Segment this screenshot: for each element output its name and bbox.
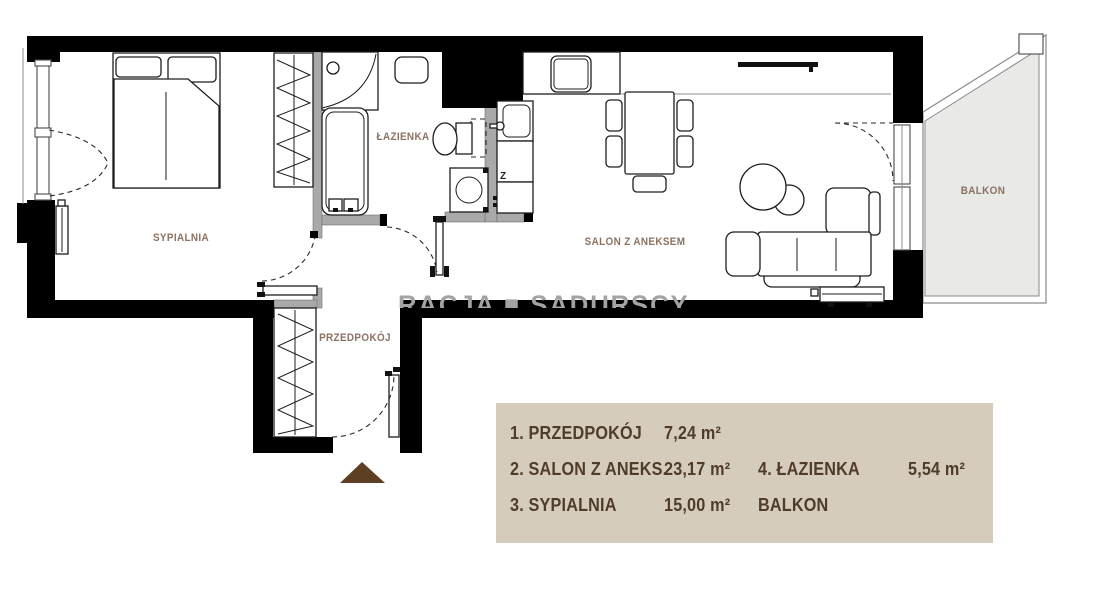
bathroom-door: [387, 216, 449, 277]
hob: [551, 56, 591, 92]
wall-left-pilaster: [17, 203, 29, 243]
sofa-back-cushion: [869, 192, 880, 235]
legend-room-name: BALKON: [758, 495, 828, 516]
wall-right-lower: [893, 250, 923, 318]
sofa-armrest: [726, 232, 760, 276]
wall-bedroom-bathroom: [313, 52, 322, 238]
legend-room-area: 23,17 m²: [664, 459, 730, 480]
legend-room-area: 5,54 m²: [908, 459, 965, 480]
bathroom-vanity: [322, 52, 378, 110]
wall-bathroom-bottom-left: [322, 215, 380, 225]
entry-door-hinge-a: [385, 371, 392, 376]
wall-wardrobe-cap: [274, 300, 317, 308]
room-label-bedroom: SYPIALNIA: [141, 232, 222, 244]
toilet-cistern: [471, 119, 486, 157]
dishwasher-marker: Z: [500, 171, 506, 182]
entry-door-leaf: [389, 375, 399, 437]
chair: [606, 100, 622, 131]
wall-hall-right: [400, 318, 422, 453]
legend-row: 1. PRZEDPOKÓJ 7,24 m²: [496, 416, 993, 452]
chair: [606, 136, 622, 167]
bathroom-door-end-a: [430, 266, 435, 277]
bathroom-door-hinge: [433, 216, 446, 222]
wall-cap-bathroom: [380, 214, 387, 226]
radiator-foot-a: [828, 302, 834, 307]
chair: [633, 176, 666, 192]
kitchen-counter-top: [523, 52, 620, 94]
window-joint-bottom: [35, 194, 51, 200]
area-legend: 1. PRZEDPOKÓJ 7,24 m² 2. SALON Z ANEKS. …: [496, 403, 993, 543]
window-joint-top: [35, 60, 51, 66]
room-label-living: SALON Z ANEKSEM: [572, 236, 698, 248]
balcony-corner-post: [1019, 34, 1043, 54]
vanity-drain: [327, 62, 339, 74]
legend-room-area: 15,00 m²: [664, 495, 730, 516]
sofa-seat: [758, 232, 871, 276]
wall-right-upper: [893, 36, 923, 123]
washing-machine: [450, 168, 488, 212]
washing-machine-mark-a: [483, 168, 488, 173]
kitchen-tall-units: Z: [490, 101, 533, 213]
wall-foot-bedroom: [310, 231, 318, 238]
wall-bottom-bedroom: [27, 300, 274, 318]
watermark: RACJA ■ SADURSCY: [398, 292, 738, 308]
bedroom-door-leaf: [263, 286, 317, 295]
radiator-valve: [811, 289, 818, 296]
tv-bar: [738, 62, 818, 67]
wall-hall-left: [253, 318, 273, 453]
entry-door-arc: [332, 375, 394, 437]
window-joint-mid: [35, 128, 51, 137]
coffee-tables: [740, 164, 804, 215]
washing-machine-mark-b: [483, 207, 488, 212]
legend-room-name: 1. PRZEDPOKÓJ: [510, 423, 642, 444]
hall-wardrobe: [274, 308, 316, 437]
bedroom-window: [23, 48, 108, 204]
radiator-foot-b: [866, 302, 872, 307]
bathroom-door-end-b: [444, 266, 449, 277]
window-swing-arc: [49, 130, 108, 196]
bathtub: [322, 108, 368, 215]
fridge: [497, 182, 533, 213]
bed: [113, 53, 220, 188]
coffee-table: [740, 164, 786, 210]
radiator-valve: [58, 200, 65, 206]
chair: [677, 136, 693, 167]
room-label-balcony: BALKON: [947, 185, 1019, 197]
bedroom-radiator: [56, 200, 68, 254]
bathtub-tap-mark-a: [333, 208, 338, 212]
room-label-hall: PRZEDPOKÓJ: [315, 332, 396, 344]
bedroom-wardrobe: [274, 53, 313, 187]
legend-room-name: 3. SYPIALNIA: [510, 495, 617, 516]
sofa-chaise: [826, 188, 871, 235]
room-label-bathroom: ŁAZIENKA: [367, 131, 439, 143]
toilet: [433, 119, 486, 157]
bedroom-door-arc: [262, 237, 315, 281]
bedroom-door-hinge-a: [257, 282, 265, 287]
balcony-floor: [925, 49, 1039, 296]
dining-set: [606, 92, 693, 192]
washbasin: [395, 57, 428, 83]
chair: [677, 100, 693, 131]
wall-hall-bottom: [253, 437, 333, 453]
tv-shelf: [738, 62, 818, 72]
legend-room-name: 4. ŁAZIENKA: [758, 459, 860, 480]
pillow-left: [116, 57, 161, 77]
fridge-hinge-b: [493, 203, 497, 207]
bedroom-door-hinge-b: [257, 292, 265, 297]
watermark-text: RACJA ■ SADURSCY: [398, 292, 721, 308]
vanity-counter: [322, 52, 378, 110]
wall-shaft: [442, 36, 523, 108]
legend-room-area: 7,24 m²: [664, 423, 721, 444]
bathroom-door-arc: [387, 227, 437, 272]
bathtub-tap-mark-b: [348, 208, 353, 212]
entry-door: [332, 367, 400, 437]
bathroom-door-leaf: [436, 222, 443, 275]
pillow-right: [168, 57, 216, 82]
entry-door-hinge-b: [393, 367, 400, 372]
legend-room-name: 2. SALON Z ANEKS.: [510, 459, 667, 480]
wall-bathroom-bottom-right: [445, 212, 485, 222]
floorplan-page: Z: [0, 0, 1095, 592]
entrance-arrow: [340, 462, 385, 483]
kitchen-sink-cabinet: [497, 101, 533, 141]
kitchen-faucet-handle: [490, 124, 497, 128]
bedroom-door: [257, 237, 317, 297]
tv-bar-tick: [809, 67, 813, 72]
balcony: [923, 34, 1046, 303]
balcony-door-arc: [835, 123, 893, 181]
toilet-tank: [456, 123, 472, 154]
fridge-hinge-a: [493, 196, 497, 200]
dining-table: [625, 92, 674, 174]
legend-row: 2. SALON Z ANEKS. 23,17 m² 4. ŁAZIENKA 5…: [496, 452, 993, 488]
legend-row: 3. SYPIALNIA 15,00 m² BALKON: [496, 488, 993, 524]
